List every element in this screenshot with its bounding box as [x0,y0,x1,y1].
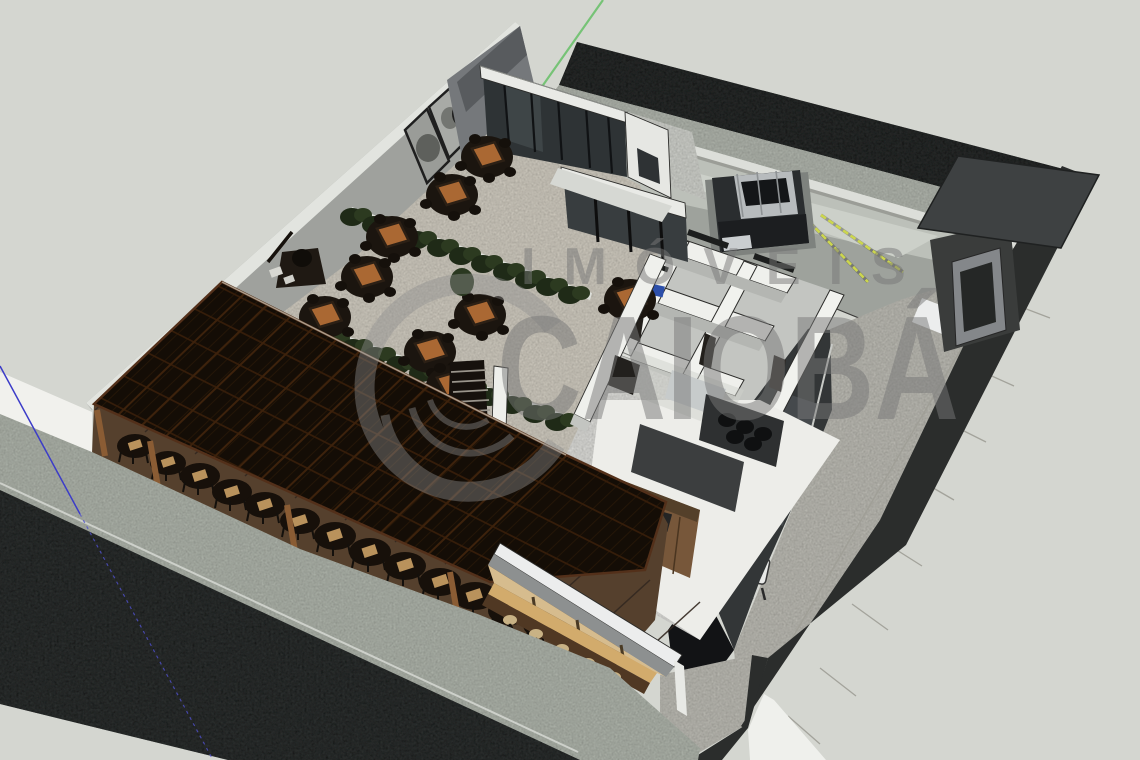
svg-text:CAIOBÁ: CAIOBÁ [497,286,959,451]
